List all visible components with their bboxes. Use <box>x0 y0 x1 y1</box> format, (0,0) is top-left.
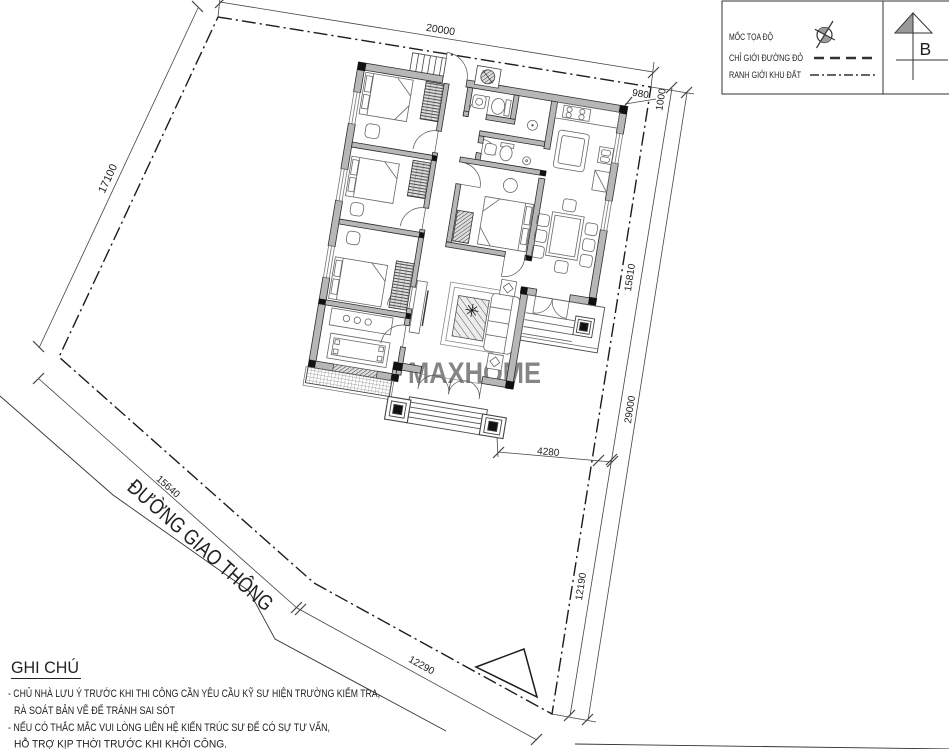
svg-text:RANH GIỚI KHU ĐẤT: RANH GIỚI KHU ĐẤT <box>729 70 801 80</box>
svg-text:CHỈ GIỚI ĐƯỜNG ĐỎ: CHỈ GIỚI ĐƯỜNG ĐỎ <box>729 52 803 63</box>
svg-text:MỐC TỌA ĐỘ: MỐC TỌA ĐỘ <box>729 31 773 42</box>
svg-text:RÀ SOÁT BẢN VẼ ĐỂ TRÁNH SAI SÓ: RÀ SOÁT BẢN VẼ ĐỂ TRÁNH SAI SÓT <box>14 704 175 717</box>
svg-text:- NẾU CÓ THẮC MẮC VUI LÒNG LIÊ: - NẾU CÓ THẮC MẮC VUI LÒNG LIÊN HỆ KIẾN … <box>8 721 330 734</box>
svg-text:B: B <box>920 39 932 59</box>
svg-text:4280: 4280 <box>537 446 561 459</box>
svg-text:- CHỦ NHÀ LƯU Ý TRƯỚC KHI THI: - CHỦ NHÀ LƯU Ý TRƯỚC KHI THI CÔNG CẦN Y… <box>8 687 380 700</box>
svg-text:HỖ TRỢ KỊP THỜI TRƯỚC KHI KHỞI: HỖ TRỢ KỊP THỜI TRƯỚC KHI KHỞI CÔNG. <box>14 738 227 749</box>
svg-text:GHI CHÚ: GHI CHÚ <box>11 658 79 677</box>
